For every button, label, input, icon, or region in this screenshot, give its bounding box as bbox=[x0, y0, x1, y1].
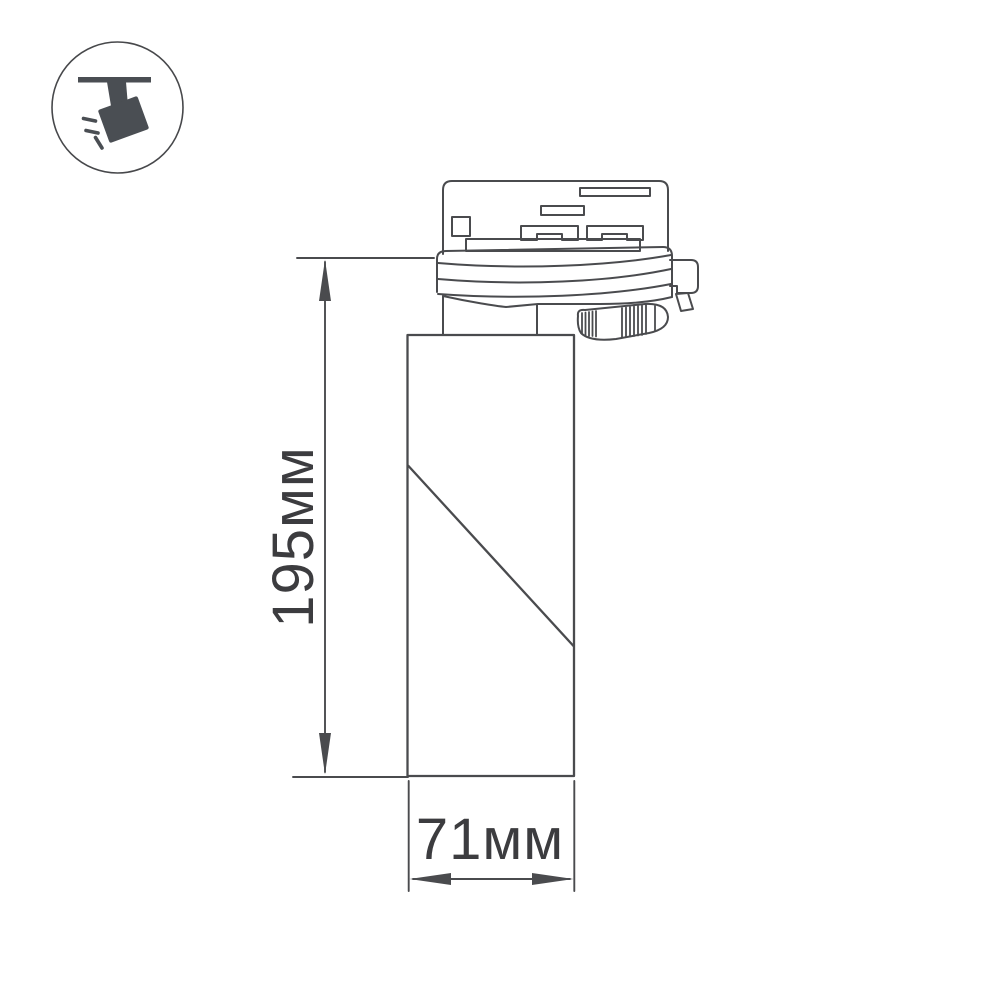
arrow-down-icon bbox=[319, 733, 331, 775]
contact-bracket-right bbox=[587, 226, 643, 240]
width-dimension-label: 71мм bbox=[416, 807, 564, 872]
body-seam-line bbox=[409, 466, 574, 646]
fixture-body bbox=[408, 335, 575, 776]
track-adapter-plate bbox=[443, 181, 668, 254]
arrow-up-icon bbox=[319, 260, 331, 302]
adjust-knob bbox=[578, 304, 668, 340]
ceiling-spotlight-badge bbox=[52, 42, 183, 173]
ceiling-track-spotlight-icon bbox=[78, 77, 151, 148]
fixture-drawing bbox=[408, 181, 699, 776]
contact-strip-long bbox=[580, 188, 650, 196]
arrow-left-icon bbox=[410, 873, 452, 885]
latch-tail bbox=[676, 293, 693, 311]
arrow-right-icon bbox=[532, 873, 574, 885]
adapter-plate-outline bbox=[443, 181, 668, 254]
height-dimension-label: 195мм bbox=[261, 446, 326, 628]
adapter-collar bbox=[437, 247, 672, 307]
contact-strip-short bbox=[541, 206, 584, 215]
phase-selector-square bbox=[452, 217, 470, 236]
lamp-head-shape bbox=[98, 96, 149, 143]
contact-bracket-left bbox=[521, 226, 578, 240]
product-dimension-drawing: 195мм 71мм bbox=[0, 0, 1000, 1000]
collar-band-line-3 bbox=[438, 284, 671, 297]
lock-latch bbox=[670, 260, 698, 311]
drawing-svg: 195мм 71мм bbox=[0, 0, 1000, 1000]
track-bar-shape bbox=[78, 77, 151, 83]
collar-band-line-2 bbox=[438, 269, 671, 282]
dimension-annotations bbox=[293, 258, 574, 891]
latch-outline bbox=[670, 260, 698, 293]
fixture-neck bbox=[443, 296, 537, 334]
collar-band-line-1 bbox=[438, 255, 671, 266]
light-rays bbox=[84, 119, 103, 149]
